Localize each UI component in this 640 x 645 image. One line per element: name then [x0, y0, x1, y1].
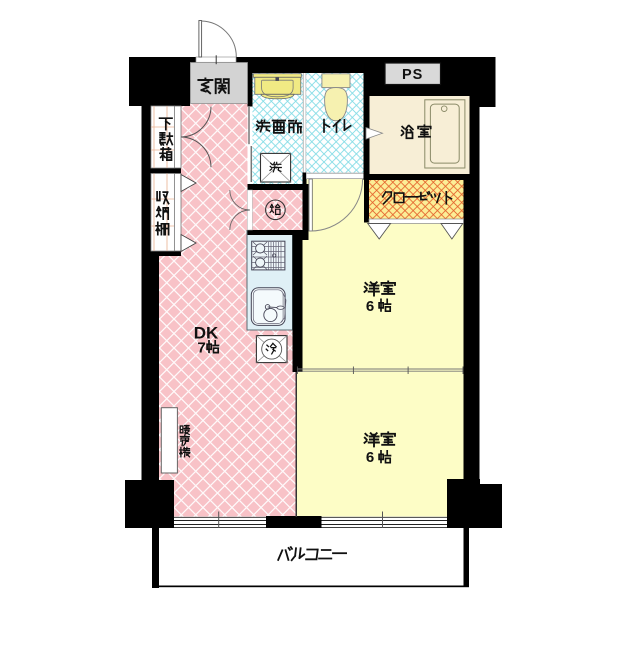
svg-text:6: 6 [366, 298, 374, 315]
svg-text:PS: PS [402, 67, 423, 83]
svg-text:6: 6 [366, 449, 374, 466]
svg-text:7: 7 [197, 340, 205, 357]
